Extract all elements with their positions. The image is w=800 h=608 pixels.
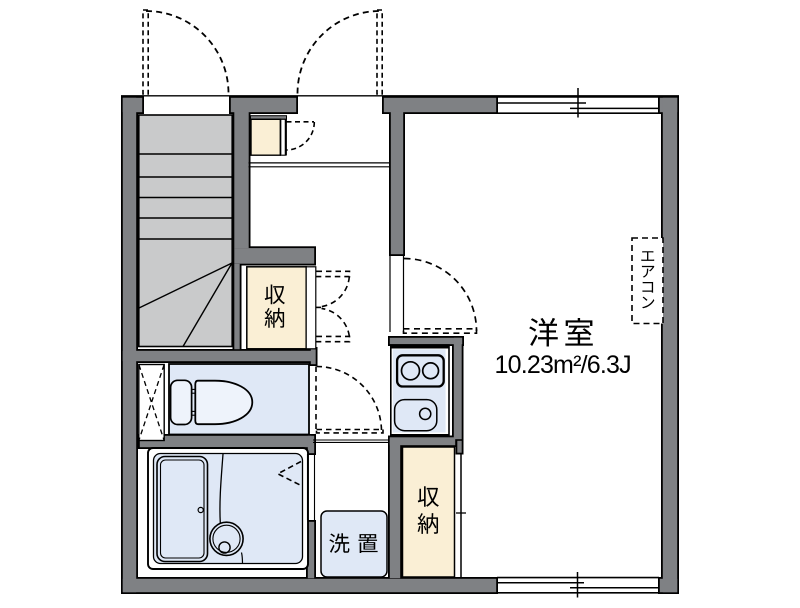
svg-text:10.23m²/6.3J: 10.23m²/6.3J [495,351,631,379]
